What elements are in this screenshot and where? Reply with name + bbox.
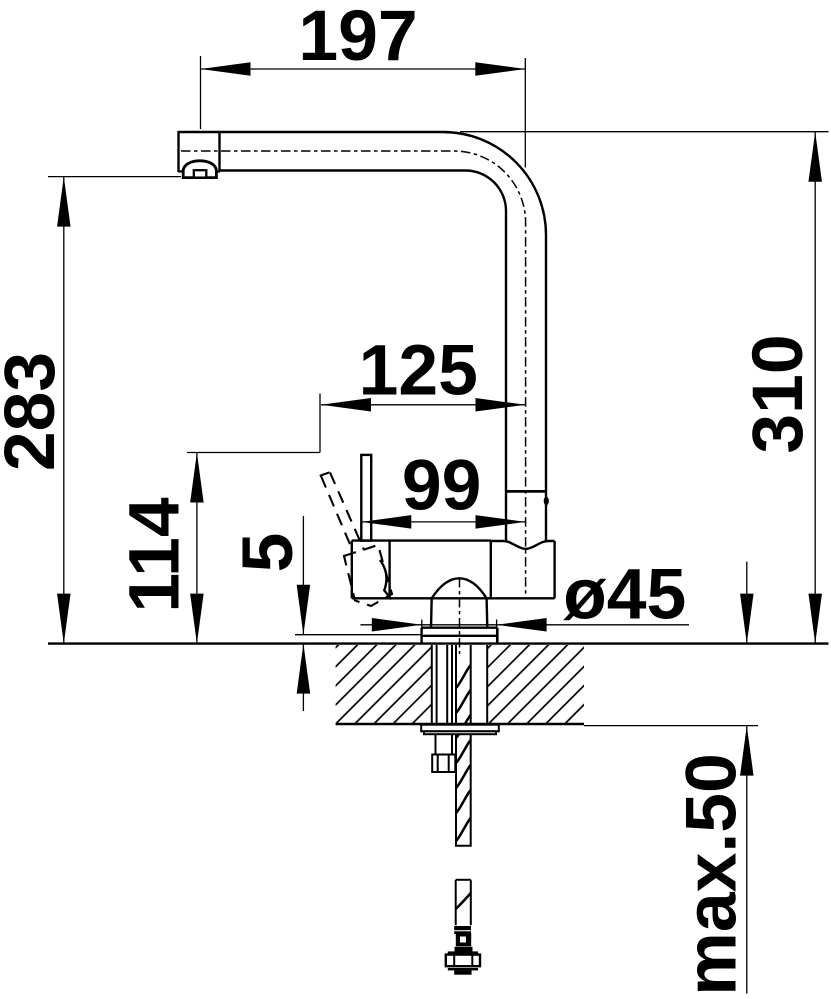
- svg-text:283: 283: [0, 352, 70, 471]
- svg-text:99: 99: [402, 446, 482, 526]
- svg-text:ø45: ø45: [563, 555, 686, 635]
- svg-text:114: 114: [115, 497, 195, 613]
- svg-text:5: 5: [228, 533, 308, 573]
- svg-text:310: 310: [738, 334, 818, 453]
- svg-text:125: 125: [359, 331, 478, 411]
- svg-text:max.50: max.50: [672, 753, 752, 996]
- svg-text:197: 197: [298, 0, 417, 76]
